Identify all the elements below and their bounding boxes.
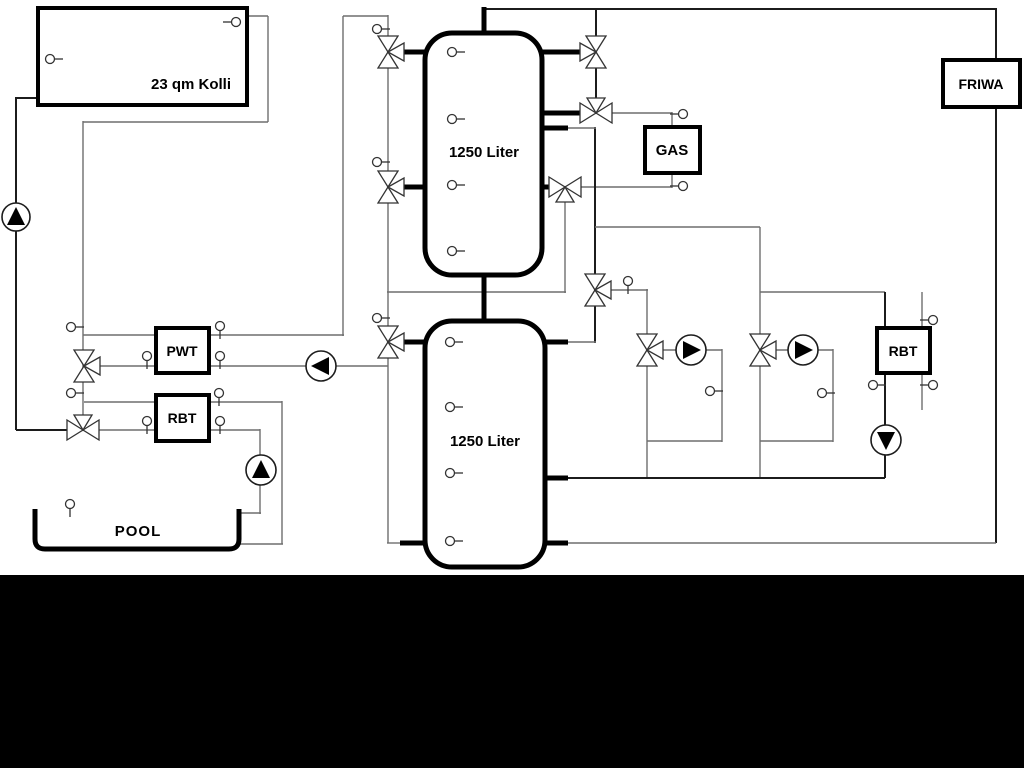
sensor-bulb	[679, 110, 688, 119]
pool-label: POOL	[115, 523, 162, 540]
friwa-label: FRIWA	[958, 76, 1003, 92]
pump-icon	[788, 335, 818, 365]
gas-boiler-label: GAS	[656, 142, 689, 159]
sensor-bulb	[373, 314, 382, 323]
pump-icon	[871, 425, 901, 455]
schematic-canvas: 23 qm Kolli 1250 Liter 1250 Liter GAS FR…	[0, 0, 1024, 768]
pump-icon	[676, 335, 706, 365]
sensor-bulb	[869, 381, 878, 390]
sensor-bulb	[448, 115, 457, 124]
sensor-bulb	[216, 352, 225, 361]
pwt-label: PWT	[166, 343, 198, 359]
sensor-bulb	[446, 338, 455, 347]
pool-rbt-label: RBT	[168, 410, 197, 426]
schematic-page: 23 qm Kolli 1250 Liter 1250 Liter GAS FR…	[0, 0, 1024, 768]
sensor-bulb	[46, 55, 55, 64]
sensor-bulb	[929, 381, 938, 390]
buffer-tank-bottom-label: 1250 Liter	[450, 433, 520, 450]
sensor-bulb	[818, 389, 827, 398]
sensor-bulb	[216, 322, 225, 331]
pump-icon	[306, 351, 336, 381]
sensor-bulb	[929, 316, 938, 325]
sensor-bulb	[67, 323, 76, 332]
sensor-bulb	[373, 25, 382, 34]
solar-collector-label: 23 qm Kolli	[151, 76, 231, 93]
sensor-bulb	[446, 537, 455, 546]
pump-icon	[2, 203, 30, 231]
sensor-bulb	[66, 500, 75, 509]
sensor-bulb	[448, 247, 457, 256]
sensor-bulb	[216, 417, 225, 426]
sensor-bulb	[624, 277, 633, 286]
sensor-bulb	[67, 389, 76, 398]
sensor-bulb	[143, 352, 152, 361]
sensor-bulb	[373, 158, 382, 167]
sensor-bulb	[448, 181, 457, 190]
pump-icon	[246, 455, 276, 485]
sensor-bulb	[446, 469, 455, 478]
sensor-bulb	[215, 389, 224, 398]
sensor-bulb	[232, 18, 241, 27]
sensor-bulb	[679, 182, 688, 191]
secondary-rbt-label: RBT	[889, 343, 918, 359]
sensor-bulb	[706, 387, 715, 396]
buffer-tank-top-label: 1250 Liter	[449, 144, 519, 161]
sensor-bulb	[448, 48, 457, 57]
sensor-bulb	[446, 403, 455, 412]
sensor-bulb	[143, 417, 152, 426]
bottom-black-bar	[0, 575, 1024, 768]
